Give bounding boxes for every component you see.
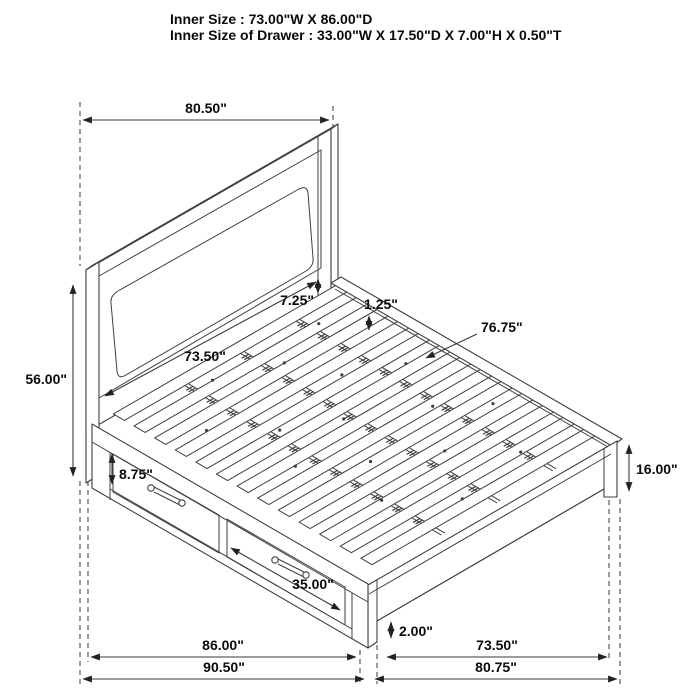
dim-floor-clearance: 2.00" [399,623,433,639]
dim-foot-outer: 80.75" [475,659,517,675]
dim-headboard-height: 56.00" [25,371,67,387]
headboard-right-post-side [331,124,338,293]
dim-footboard-height: 16.00" [636,461,678,477]
dim-side-inner: 86.00" [202,637,244,653]
dim-rail-lip: 1.25" [364,296,398,312]
dim-panel-to-rail: 7.25" [280,292,314,308]
title-block: Inner Size : 73.00"W X 86.00"D Inner Siz… [170,11,562,43]
dim-drawer-height: 8.75" [119,466,153,482]
dim-drawer-width: 35.00" [292,576,334,592]
dim-headboard-width: 80.50" [185,100,227,116]
drawer-inner-size-label: Inner Size of Drawer : 33.00"W X 17.50"D… [170,27,562,43]
dim-slat-length: 76.75" [481,319,523,335]
diagram-canvas: Inner Size : 73.00"W X 86.00"D Inner Siz… [0,0,700,700]
dim-headboard-panel-width: 73.50" [184,348,226,364]
dim-foot-inner: 73.50" [476,637,518,653]
bed-dimension-diagram: Inner Size : 73.00"W X 86.00"D Inner Siz… [0,0,700,700]
dim-side-outer: 90.50" [203,659,245,675]
inner-size-label: Inner Size : 73.00"W X 86.00"D [170,11,372,27]
